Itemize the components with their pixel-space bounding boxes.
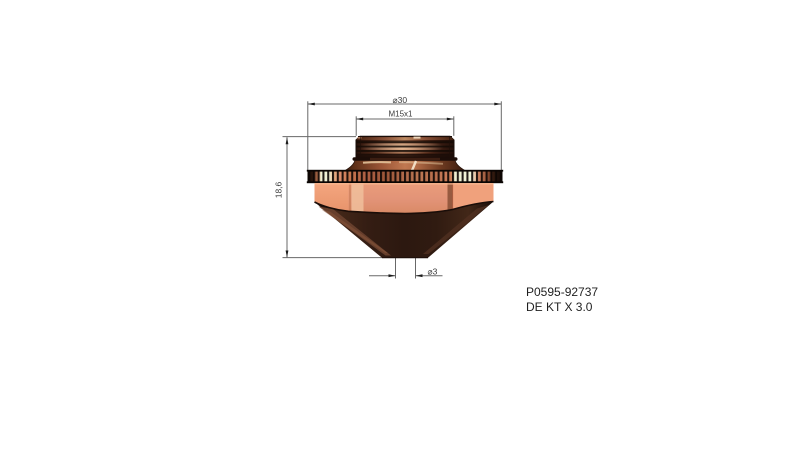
svg-text:M15x1: M15x1 xyxy=(388,110,413,119)
svg-text:⌀30: ⌀30 xyxy=(393,95,408,105)
svg-text:P0595-92737: P0595-92737 xyxy=(526,285,598,299)
svg-text:18,6: 18,6 xyxy=(274,181,284,198)
svg-text:DE KT X 3.0: DE KT X 3.0 xyxy=(526,300,593,314)
svg-text:⌀3: ⌀3 xyxy=(428,266,438,276)
